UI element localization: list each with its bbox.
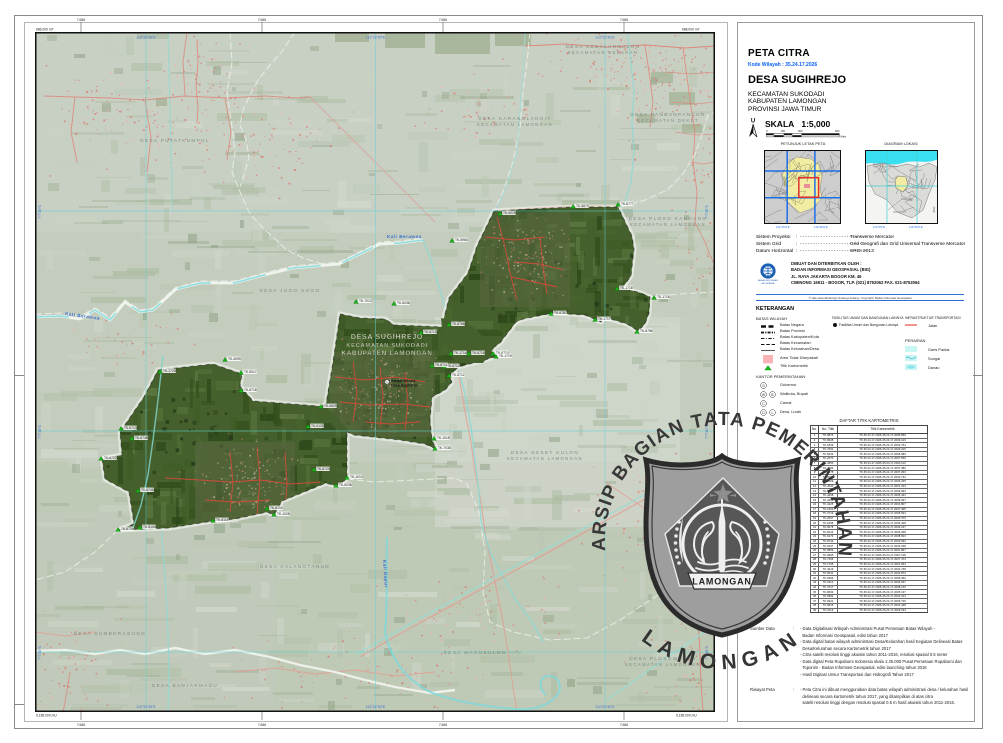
svg-text:TK-6713: TK-6713: [124, 426, 137, 430]
svg-text:TK-5104: TK-5104: [143, 525, 156, 529]
svg-text:TK-1028: TK-1028: [277, 512, 290, 516]
svg-text:TK-5038: TK-5038: [339, 483, 352, 487]
svg-text:DESA PUTATKUMPUL: DESA PUTATKUMPUL: [140, 138, 209, 143]
svg-text:KECAMATAN SEKARAN: KECAMATAN SEKARAN: [568, 50, 638, 55]
svg-text:9,185,000 mU: 9,185,000 mU: [676, 714, 697, 718]
svg-text:DESA PANDANPANCUR: DESA PANDANPANCUR: [630, 112, 705, 117]
svg-text:DESA PLOSO KANDANG: DESA PLOSO KANDANG: [629, 216, 708, 221]
svg-text:Kantor Kepala: Kantor Kepala: [391, 379, 416, 383]
svg-text:i: i: [387, 381, 388, 385]
svg-text:U: U: [751, 119, 755, 125]
svg-text:7°7'30"S: 7°7'30"S: [38, 646, 42, 660]
svg-text:TK-7013: TK-7013: [359, 299, 372, 303]
svg-text:600: 600: [835, 129, 840, 133]
svg-text:TK-6712: TK-6712: [447, 364, 460, 368]
svg-text:DESA KARANGLANGIT: DESA KARANGLANGIT: [478, 116, 551, 121]
svg-text:TK-1714: TK-1714: [454, 351, 467, 355]
svg-text:TK-1716: TK-1716: [657, 295, 670, 299]
svg-text:7486: 7486: [258, 18, 266, 22]
svg-text:TK-0829: TK-0829: [324, 404, 337, 408]
svg-text:DESA KALANGTANUN: DESA KALANGTANUN: [260, 564, 330, 569]
svg-text:TK-5766: TK-5766: [452, 322, 465, 326]
svg-text:TK-9017: TK-9017: [244, 370, 257, 374]
svg-text:LAMONGAN: LAMONGAN: [692, 577, 751, 587]
svg-text:TK-6713: TK-6713: [424, 330, 437, 334]
svg-text:TK-0132: TK-0132: [311, 424, 324, 428]
svg-text:KECAMATAN LAMONGAN: KECAMATAN LAMONGAN: [477, 122, 553, 127]
svg-text:TK-5036: TK-5036: [397, 301, 410, 305]
svg-text:7486: 7486: [77, 723, 85, 727]
svg-text:112°22'30"E: 112°22'30"E: [366, 705, 386, 709]
svg-text:TK-6724: TK-6724: [121, 527, 134, 531]
svg-text:7486: 7486: [439, 18, 447, 22]
svg-text:KABUPATEN LAMONGAN: KABUPATEN LAMONGAN: [341, 350, 432, 357]
svg-text:TK-6104: TK-6104: [270, 506, 283, 510]
svg-text:150: 150: [781, 129, 786, 133]
svg-text:DESA BANJARMADU: DESA BANJARMADU: [152, 683, 218, 688]
svg-text:KECAMATAN SUKODADI: KECAMATAN SUKODADI: [346, 343, 428, 349]
svg-text:TK-7038: TK-7038: [438, 446, 451, 450]
svg-text:DESA SUMBERAGUNG: DESA SUMBERAGUNG: [74, 631, 146, 636]
svg-text:DESA JUGO SOGO: DESA JUGO SOGO: [260, 288, 321, 293]
svg-text:0: 0: [766, 129, 768, 133]
svg-text:TK-8723: TK-8723: [317, 467, 330, 471]
svg-text:688,000 mT: 688,000 mT: [682, 28, 700, 32]
svg-text:112°22'30"E: 112°22'30"E: [136, 36, 156, 40]
svg-text:7°7'30"S: 7°7'30"S: [705, 205, 709, 219]
svg-text:TK-6118: TK-6118: [216, 518, 229, 522]
svg-text:112°22'30"E: 112°22'30"E: [136, 705, 156, 709]
svg-text:7°7'30"S: 7°7'30"S: [38, 205, 42, 219]
svg-text:TK-5712: TK-5712: [452, 373, 465, 377]
svg-text:TK-6748: TK-6748: [135, 436, 148, 440]
svg-text:TK-1010: TK-1010: [350, 475, 363, 479]
svg-text:TK-1717: TK-1717: [598, 317, 611, 321]
svg-text:DESA WARUKULON: DESA WARUKULON: [444, 650, 507, 655]
svg-text:7486: 7486: [258, 723, 266, 727]
svg-text:7486: 7486: [620, 723, 628, 727]
svg-text:TK-1719: TK-1719: [499, 354, 512, 358]
svg-text:TK-6787: TK-6787: [554, 311, 567, 315]
svg-text:TK-1724: TK-1724: [163, 369, 176, 373]
svg-text:686,000 mT: 686,000 mT: [36, 28, 54, 32]
svg-text:TK-6711: TK-6711: [435, 363, 448, 367]
svg-text:KECAMATAN DEKET: KECAMATAN DEKET: [637, 118, 699, 123]
svg-text:112°22'30"E: 112°22'30"E: [595, 36, 615, 40]
svg-text:KECAMATAN LAMONGAN: KECAMATAN LAMONGAN: [630, 222, 706, 227]
svg-text:Desa Sugihrejo: Desa Sugihrejo: [391, 384, 418, 388]
svg-text:TK-6722: TK-6722: [104, 456, 117, 460]
svg-text:TK-6718: TK-6718: [244, 388, 257, 392]
svg-text:TK-1718: TK-1718: [620, 286, 633, 290]
svg-text:TK-5879: TK-5879: [576, 204, 589, 208]
svg-text:7486: 7486: [439, 723, 447, 727]
svg-text:TK-3099: TK-3099: [228, 357, 241, 361]
svg-text:TK-5019: TK-5019: [503, 211, 516, 215]
svg-text:9,185,000 mU: 9,185,000 mU: [36, 714, 57, 718]
svg-text:DESA KEBALANKULON: DESA KEBALANKULON: [566, 44, 640, 49]
svg-text:TK-6786: TK-6786: [640, 329, 653, 333]
svg-text:7°7'30"S: 7°7'30"S: [38, 425, 42, 439]
svg-text:7486: 7486: [77, 18, 85, 22]
svg-text:TK-6716: TK-6716: [472, 351, 485, 355]
svg-text:Kali Berawoa: Kali Berawoa: [387, 234, 422, 239]
svg-text:DESA SUGIHREJO: DESA SUGIHREJO: [351, 334, 423, 341]
svg-text:7486: 7486: [620, 18, 628, 22]
svg-text:Meter: Meter: [841, 135, 847, 139]
svg-text:300: 300: [798, 129, 803, 133]
svg-text:TK-1018: TK-1018: [437, 436, 450, 440]
svg-text:TK-6777: TK-6777: [621, 202, 634, 206]
svg-text:112°22'30"E: 112°22'30"E: [366, 36, 386, 40]
svg-text:TK-5984: TK-5984: [455, 238, 468, 242]
svg-text:TK-6741: TK-6741: [141, 488, 154, 492]
